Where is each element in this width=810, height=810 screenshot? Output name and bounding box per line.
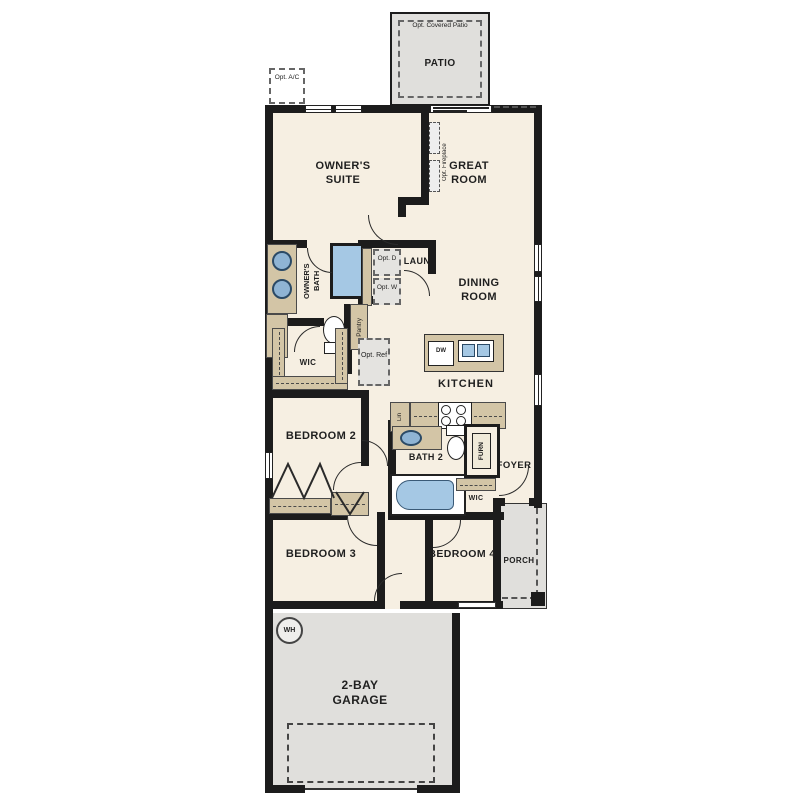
hall-closet-shelf <box>331 492 369 516</box>
tub <box>396 480 454 510</box>
wic-label: WIC <box>288 358 328 368</box>
owners-suite-label: OWNER'S SUITE <box>307 160 379 188</box>
wall-garage-bottom-right <box>417 785 460 793</box>
wall-bath-wic <box>286 318 324 326</box>
toilet2-bowl <box>447 436 465 460</box>
wall-front-right <box>529 498 542 506</box>
laun-label: LAUN <box>398 256 436 267</box>
opt-washer-box: Opt. W <box>373 278 401 305</box>
wic-shelf-right <box>335 328 348 384</box>
lin-label: Lin <box>397 413 403 421</box>
wall-fireplace <box>421 109 429 205</box>
opt-fireplace-label: Opt. Fireplace <box>442 120 452 204</box>
kitchen-label: KITCHEN <box>420 378 512 392</box>
patio-slider-line1 <box>433 107 489 109</box>
laundry-strip <box>362 248 372 306</box>
water-heater-label: WH <box>284 627 296 634</box>
dining-room-label: DINING ROOM <box>444 277 514 305</box>
porch-dash-vertical <box>536 508 538 596</box>
wic-shelf-bottom-rod <box>276 383 344 384</box>
burner-2 <box>456 405 466 415</box>
dishwasher-label: DW <box>431 348 451 354</box>
bedroom4-label: BEDROOM 4 <box>422 548 502 561</box>
wall-jog-v <box>398 197 406 217</box>
wall-right <box>534 105 542 508</box>
water-heater-icon: WH <box>276 617 303 644</box>
bedroom2-label: BEDROOM 2 <box>266 430 376 444</box>
opt-fireplace-box2 <box>429 160 440 192</box>
pantry-label: Pantry <box>356 318 363 337</box>
bedroom3-label: BEDROOM 3 <box>266 548 376 562</box>
wic2-shelf-rod <box>460 485 492 486</box>
opt-ref-box: Opt. Ref <box>358 338 390 386</box>
toilet2-tank <box>446 425 466 436</box>
window-dining-2 <box>534 276 542 302</box>
opt-door-dashes <box>494 106 536 110</box>
wic2-shelf <box>456 478 496 491</box>
floor-plan: Opt. Covered Patio PATIO Opt. A/C WH 2-B… <box>0 0 810 810</box>
island-sink-basin2 <box>477 344 490 357</box>
wall-garage-left <box>265 613 273 793</box>
patio-slider-line2 <box>433 110 467 112</box>
window-bedroom2 <box>265 452 273 479</box>
opt-ac-label: Opt. A/C <box>271 74 303 82</box>
bedroom2-closet-rod <box>273 506 327 507</box>
window-suite-1 <box>305 105 332 113</box>
shower <box>330 243 364 299</box>
porch-post <box>531 592 545 606</box>
wic-shelf-left-rod <box>279 332 280 380</box>
bedroom2-closet-shelf <box>269 498 331 514</box>
bath2-sink <box>400 430 422 446</box>
owners-sink-2 <box>272 279 292 299</box>
wic-shelf-right-rod <box>342 332 343 380</box>
patio-label: PATIO <box>398 58 482 71</box>
furn-label: FURN <box>478 442 485 460</box>
garage-parking-dashed <box>287 723 435 783</box>
furnace-unit: FURN <box>472 433 491 469</box>
window-dining-1 <box>534 244 542 272</box>
island-sink-basin1 <box>462 344 475 357</box>
hall-closet-rod <box>335 504 365 505</box>
owners-sink-1 <box>272 251 292 271</box>
wall-bottom-left <box>265 601 377 609</box>
wall-garage-right <box>452 613 460 793</box>
wall-bedroom2-top <box>265 390 369 398</box>
window-suite-2 <box>335 105 362 113</box>
opt-dryer-box: Opt. D <box>373 249 401 276</box>
front-step <box>458 602 496 608</box>
opt-covered-patio-label: Opt. Covered Patio <box>398 22 482 30</box>
window-kitchen <box>534 374 542 406</box>
bath2-label: BATH 2 <box>408 452 444 463</box>
wall-garage-bottom-left <box>265 785 305 793</box>
garage-label: 2-BAY GARAGE <box>320 678 400 708</box>
burner-1 <box>441 405 451 415</box>
garage-door-line <box>305 788 417 790</box>
opt-fireplace-box1 <box>429 122 440 154</box>
